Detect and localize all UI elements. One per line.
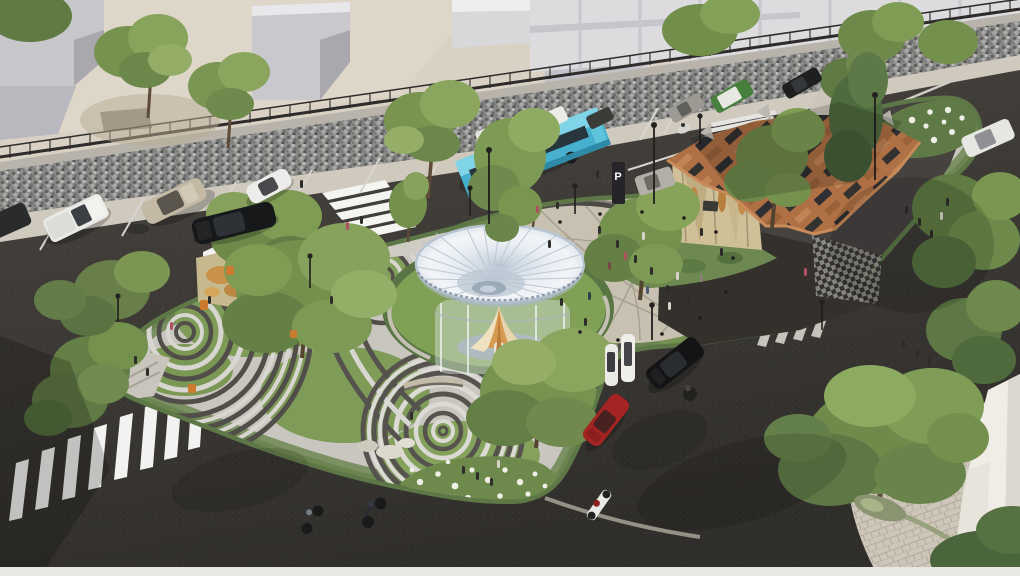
svg-text:P: P — [614, 171, 621, 183]
